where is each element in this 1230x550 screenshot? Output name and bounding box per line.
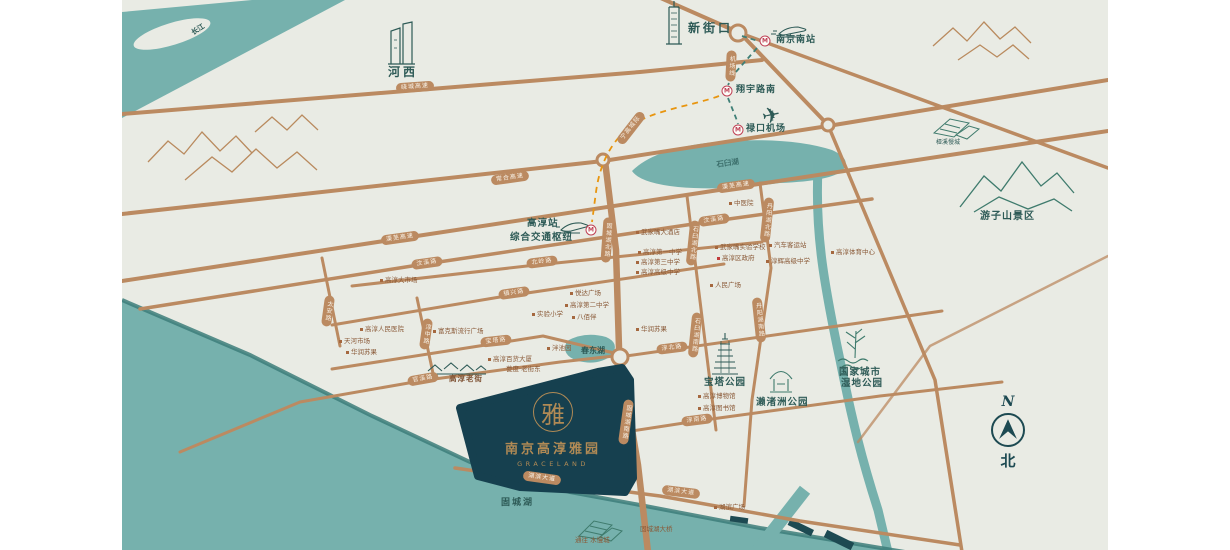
poi-label: 通往 水慢城 [575, 537, 610, 544]
road-pill: 汶溪路 [411, 256, 443, 270]
poi-label-text: 武家嘴实验学校 [720, 244, 766, 251]
poi-label-text: 八佰伴 [577, 314, 597, 321]
poi-label: 富克斯流行广场 [433, 328, 484, 335]
poi-label-text: 甍度·老街东 [506, 366, 541, 373]
poi-label: 中医院 [729, 200, 754, 207]
poi-label-text: 华润苏果 [641, 326, 667, 333]
poi-label-text: 实验小学 [537, 311, 563, 318]
road-pill: 湖滨大道 [522, 470, 561, 485]
road-pill: 镇兴路 [498, 286, 530, 300]
area-label-transport-hub: 综合交通枢纽 [510, 233, 573, 243]
poi-marker-dot [638, 251, 641, 254]
road-pill: 常合高速 [490, 170, 529, 185]
road-pill: 太安路 [321, 295, 335, 327]
road-pill: 丹阳湖南路 [752, 297, 767, 343]
metro-station-icon: M [760, 36, 771, 47]
road-pill: 宝塔路 [480, 334, 512, 347]
poi-label-text: 高淳体育中心 [836, 249, 875, 256]
poi-marker-dot [636, 261, 639, 264]
road-pill: 溧芜高速 [380, 230, 419, 245]
road-pill: 固城湖南路 [618, 399, 634, 445]
poi-label-text: 高淳第三中学 [641, 259, 680, 266]
poi-label: 高淳图书馆 [698, 405, 736, 412]
poi-label: 八佰伴 [572, 314, 597, 321]
poi-label: 武家嘴大酒店 [636, 229, 680, 236]
poi-label: 武家嘴实验学校 [715, 244, 766, 251]
poi-marker-dot [532, 313, 535, 316]
poi-marker-dot [766, 260, 769, 263]
road-pill: 湖滨大道 [662, 485, 701, 500]
poi-marker-dot [714, 506, 717, 509]
poi-label-text: 高淳第一中学 [643, 249, 682, 256]
poi-label: 泮池园 [547, 345, 572, 352]
poi-label-text: 高淳第二中学 [570, 302, 609, 309]
area-label-hexi: 河西 [388, 66, 418, 78]
poi-marker-dot [717, 257, 720, 260]
poi-label-text: 湖滨广场 [719, 504, 745, 511]
project-name-en: GRACELAND [505, 460, 601, 468]
poi-marker-dot [346, 351, 349, 354]
poi-marker-dot [698, 407, 701, 410]
metro-station-icon: M [586, 225, 597, 236]
poi-label-text: 固城湖大桥 [640, 526, 673, 533]
area-label-lukou-airport: 禄口机场 [746, 125, 786, 134]
road-pill: 绕城高速 [396, 81, 435, 94]
area-label-wetland-2: 湿地公园 [841, 379, 883, 389]
poi-label-text: 高淳博物馆 [703, 393, 736, 400]
metro-station-icon: M [733, 125, 744, 136]
poi-label-text: 高淳区政府 [722, 255, 755, 262]
poi-label: 高淳博物馆 [698, 393, 736, 400]
poi-label: 高淳体育中心 [831, 249, 875, 256]
poi-marker-dot [488, 358, 491, 361]
poi-label: 固城湖大桥 [640, 526, 673, 533]
area-label-nanjing-south: 南京南站 [776, 36, 816, 45]
poi-marker-dot [636, 231, 639, 234]
poi-label-text: 高淳大市场 [385, 277, 418, 284]
poi-label: 悦达广场 [570, 290, 601, 297]
area-label-gucheng-lake: 固城湖 [501, 499, 534, 508]
poi-label: 实验小学 [532, 311, 563, 318]
logo-seal: 雅 [533, 392, 573, 432]
compass: N 北 [983, 394, 1033, 471]
poi-label: 高淳第一中学 [638, 249, 682, 256]
compass-north-label: 北 [983, 450, 1033, 471]
road-pill: 机场线 [725, 50, 737, 81]
poi-marker-dot [636, 328, 639, 331]
poi-label-text: 汽车客运站 [774, 242, 807, 249]
poi-label: 华润苏果 [346, 349, 377, 356]
road-pill: 淳中路 [419, 318, 433, 350]
area-label-xiangyu-south: 翔宇路南 [736, 86, 776, 95]
road-pill: 石臼湖南路 [688, 312, 703, 358]
poi-marker-dot [339, 340, 342, 343]
poi-marker-dot [547, 347, 550, 350]
road-pill: 宁高城际 [615, 110, 646, 146]
road-pill: 溧芜高速 [716, 178, 755, 193]
road-pill: 北岭路 [526, 255, 558, 269]
poi-label: 天河市场 [339, 338, 370, 345]
poi-marker-dot [380, 279, 383, 282]
poi-marker-dot [570, 292, 573, 295]
poi-label-text: 高淳图书馆 [703, 405, 736, 412]
poi-label: 汽车客运站 [769, 242, 807, 249]
poi-marker-dot [831, 251, 834, 254]
area-label-xinjiekou: 新街口 [688, 22, 733, 34]
area-label-youzishan: 游子山景区 [980, 212, 1035, 222]
road-pill: 石臼湖北路 [686, 220, 701, 266]
area-label-changjiang: 长江 [190, 22, 206, 35]
poi-label: 高淳高级中学 [636, 269, 680, 276]
poi-label-text: 通往 水慢城 [575, 537, 610, 544]
poi-marker-dot [698, 395, 701, 398]
poi-label-text: 高淳人民医院 [365, 326, 404, 333]
road-pill: 丹阳湖北路 [760, 197, 775, 243]
area-label-yaxi: 桠溪慢城 [936, 140, 960, 146]
poi-marker-dot [360, 328, 363, 331]
poi-label: 淳辉高级中学 [766, 258, 810, 265]
poi-marker-dot [565, 304, 568, 307]
area-label-laizhuzhou-park: 濑渚洲公园 [756, 398, 809, 408]
area-label-baota-park: 宝塔公园 [704, 378, 746, 388]
area-label-chundong-lake: 春东湖 [581, 346, 605, 354]
poi-marker-dot [729, 202, 732, 205]
poi-label-text: 高淳百货大厦 [493, 356, 532, 363]
poi-label-text: 悦达广场 [575, 290, 601, 297]
metro-station-icon: M [722, 86, 733, 97]
poi-label: 人民广场 [710, 282, 741, 289]
poi-label-text: 富克斯流行广场 [438, 328, 484, 335]
poi-label-text: 武家嘴大酒店 [641, 229, 680, 236]
project-logo: 雅 南京高淳雅园 GRACELAND [505, 392, 601, 468]
poi-marker-dot [572, 316, 575, 319]
poi-label: 高淳第二中学 [565, 302, 609, 309]
poi-label: 高淳区政府 [717, 255, 755, 262]
road-pill: 淳南路 [681, 413, 713, 427]
poi-label-text: 天河市场 [344, 338, 370, 345]
poi-marker-dot [715, 246, 718, 249]
poi-label-text: 淳辉高级中学 [771, 258, 810, 265]
poi-label: 华润苏果 [636, 326, 667, 333]
poi-label-text: 泮池园 [552, 345, 572, 352]
poi-marker-dot [636, 271, 639, 274]
poi-label-text: 人民广场 [715, 282, 741, 289]
poi-label: 甍度·老街东 [506, 366, 541, 373]
poi-marker-dot [769, 244, 772, 247]
road-pill: 官溪路 [407, 371, 439, 386]
label-layer: 绕城高速常合高速溧芜高速溧芜高速汶溪路汶溪路北岭路镇兴路宝塔路淳北路官溪路淳南路… [0, 0, 1230, 550]
compass-n-label: N [983, 394, 1033, 410]
compass-icon [991, 413, 1025, 447]
poi-label: 高淳人民医院 [360, 326, 404, 333]
poi-label-text: 高淳高级中学 [641, 269, 680, 276]
poi-marker-dot [710, 284, 713, 287]
poi-label-text: 华润苏果 [351, 349, 377, 356]
poi-marker-dot [433, 330, 436, 333]
poi-label-text: 中医院 [734, 200, 754, 207]
poi-label: 高淳第三中学 [636, 259, 680, 266]
poi-label: 高淳大市场 [380, 277, 418, 284]
area-label-wetland-1: 国家城市 [839, 368, 881, 378]
area-label-shijiu-lake: 石臼湖 [716, 158, 739, 169]
poi-label: 湖滨广场 [714, 504, 745, 511]
map-canvas: ✈ 绕城高速常合高速溧芜高速溧芜高速汶溪路汶溪路北岭路镇兴路宝塔路淳北路官溪路淳… [0, 0, 1230, 550]
poi-label: 高淳百货大厦 [488, 356, 532, 363]
project-name: 南京高淳雅园 [505, 438, 601, 457]
area-label-gaochun-station: 高淳站 [527, 219, 559, 229]
road-pill: 淳北路 [656, 341, 688, 355]
road-pill: 汶溪路 [698, 213, 730, 227]
area-label-gaochun-old-street: 高淳老街 [449, 375, 483, 383]
road-pill: 固城湖北路 [600, 217, 613, 263]
